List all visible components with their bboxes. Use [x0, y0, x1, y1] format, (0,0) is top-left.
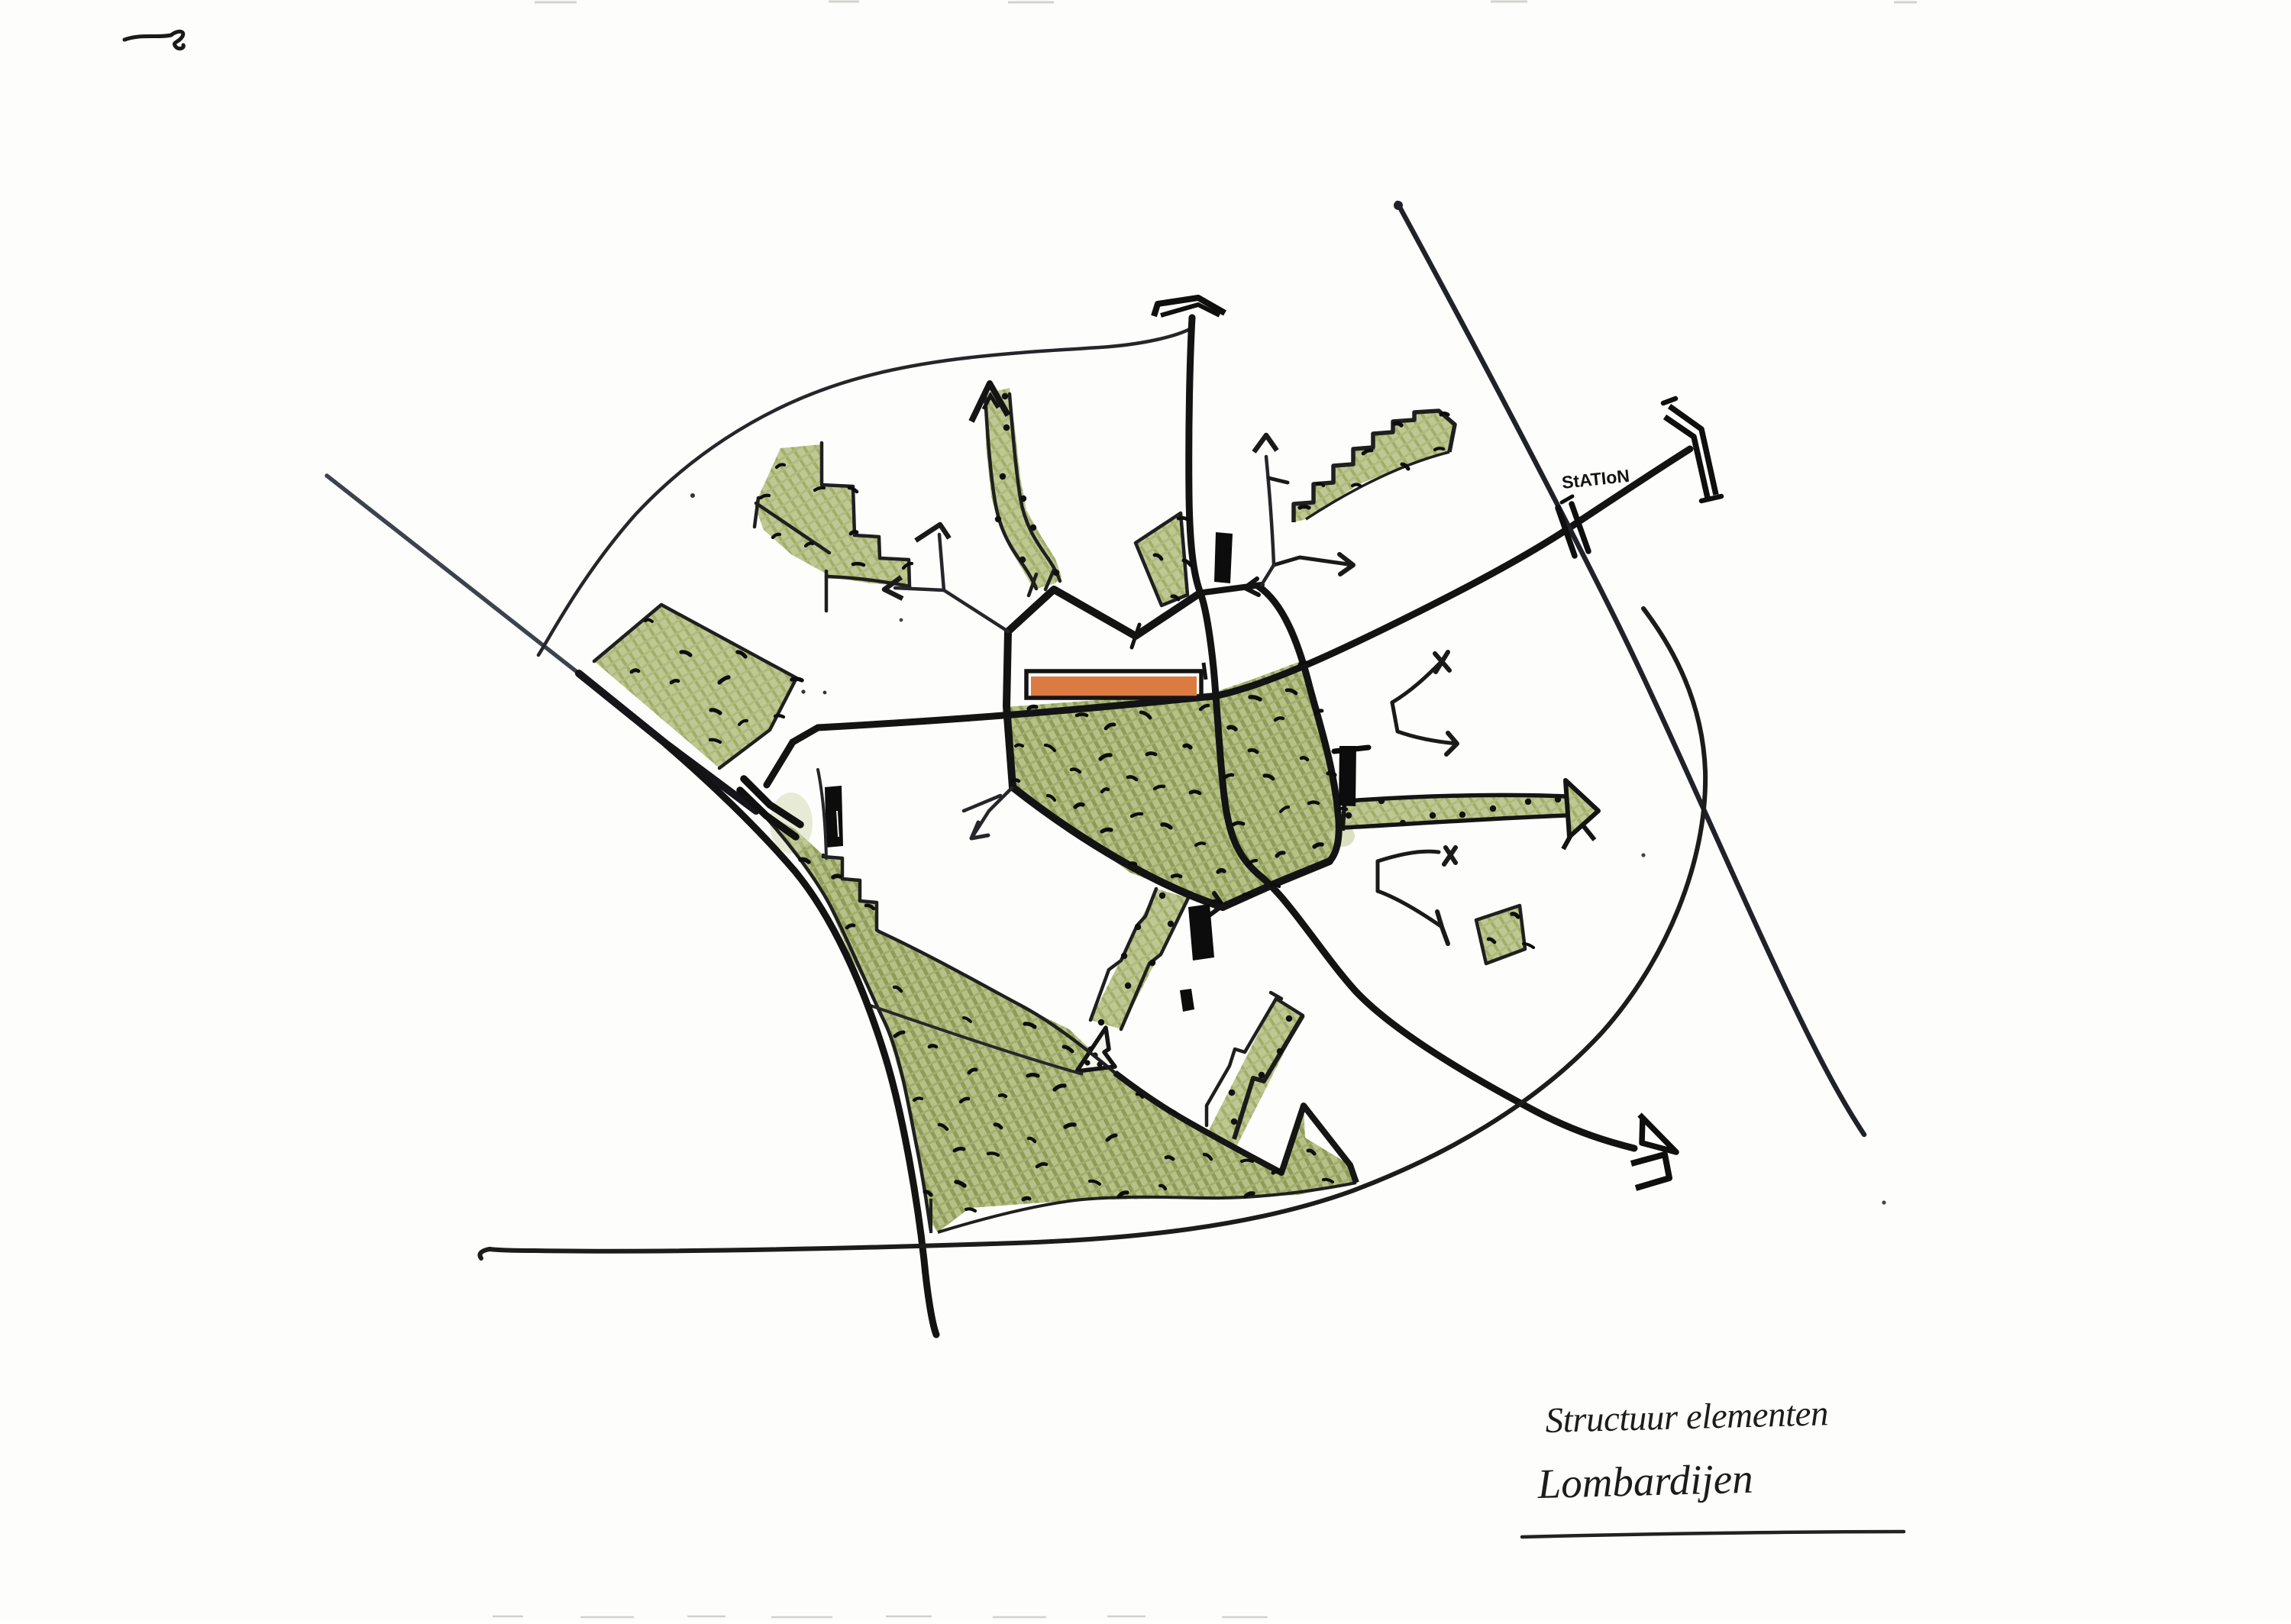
svg-text:Structuur elementen: Structuur elementen	[1545, 1393, 1829, 1441]
svg-text:Lombardijen: Lombardijen	[1536, 1455, 1754, 1507]
